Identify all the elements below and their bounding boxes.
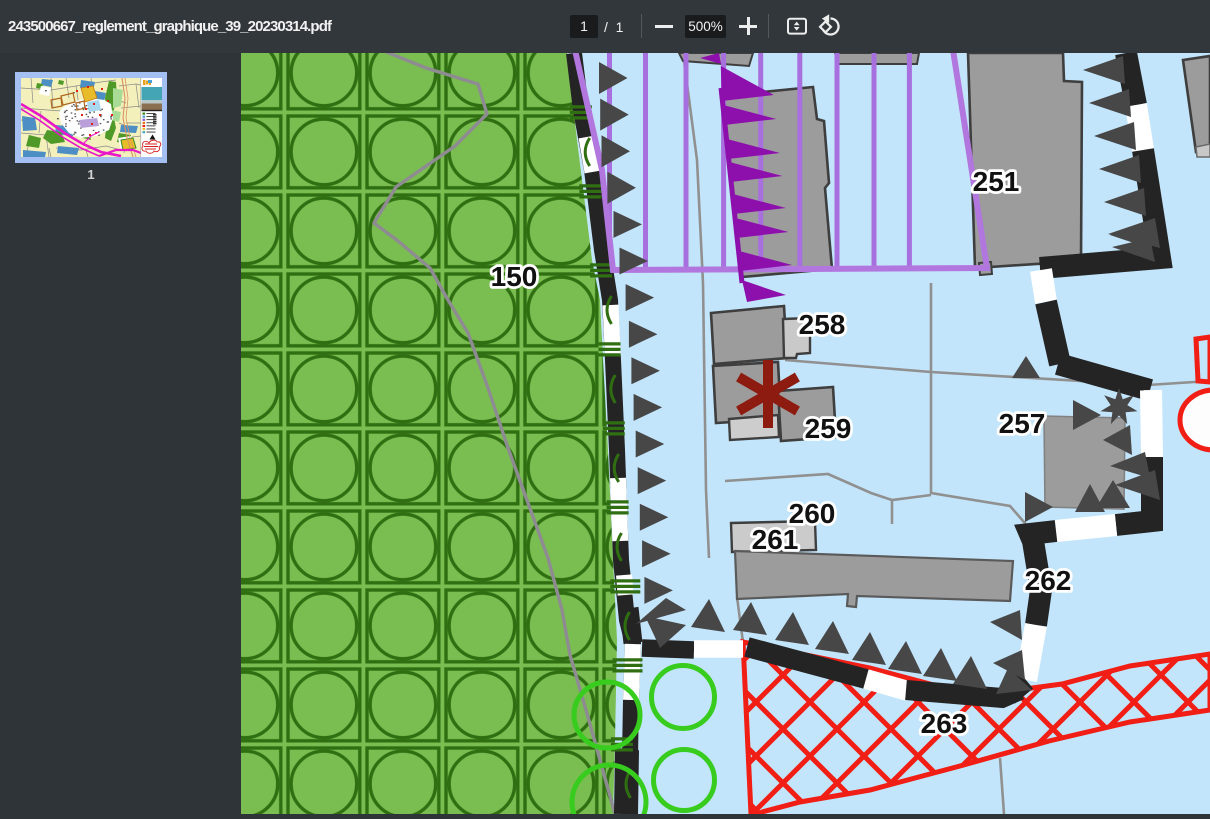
svg-text:150: 150	[491, 261, 538, 292]
svg-text:251: 251	[973, 166, 1020, 197]
svg-text:258: 258	[799, 309, 846, 340]
svg-text:262: 262	[1025, 565, 1072, 596]
svg-text:263: 263	[921, 708, 968, 739]
svg-text:259: 259	[805, 413, 852, 444]
svg-text:261: 261	[752, 524, 799, 555]
svg-text:257: 257	[999, 408, 1046, 439]
